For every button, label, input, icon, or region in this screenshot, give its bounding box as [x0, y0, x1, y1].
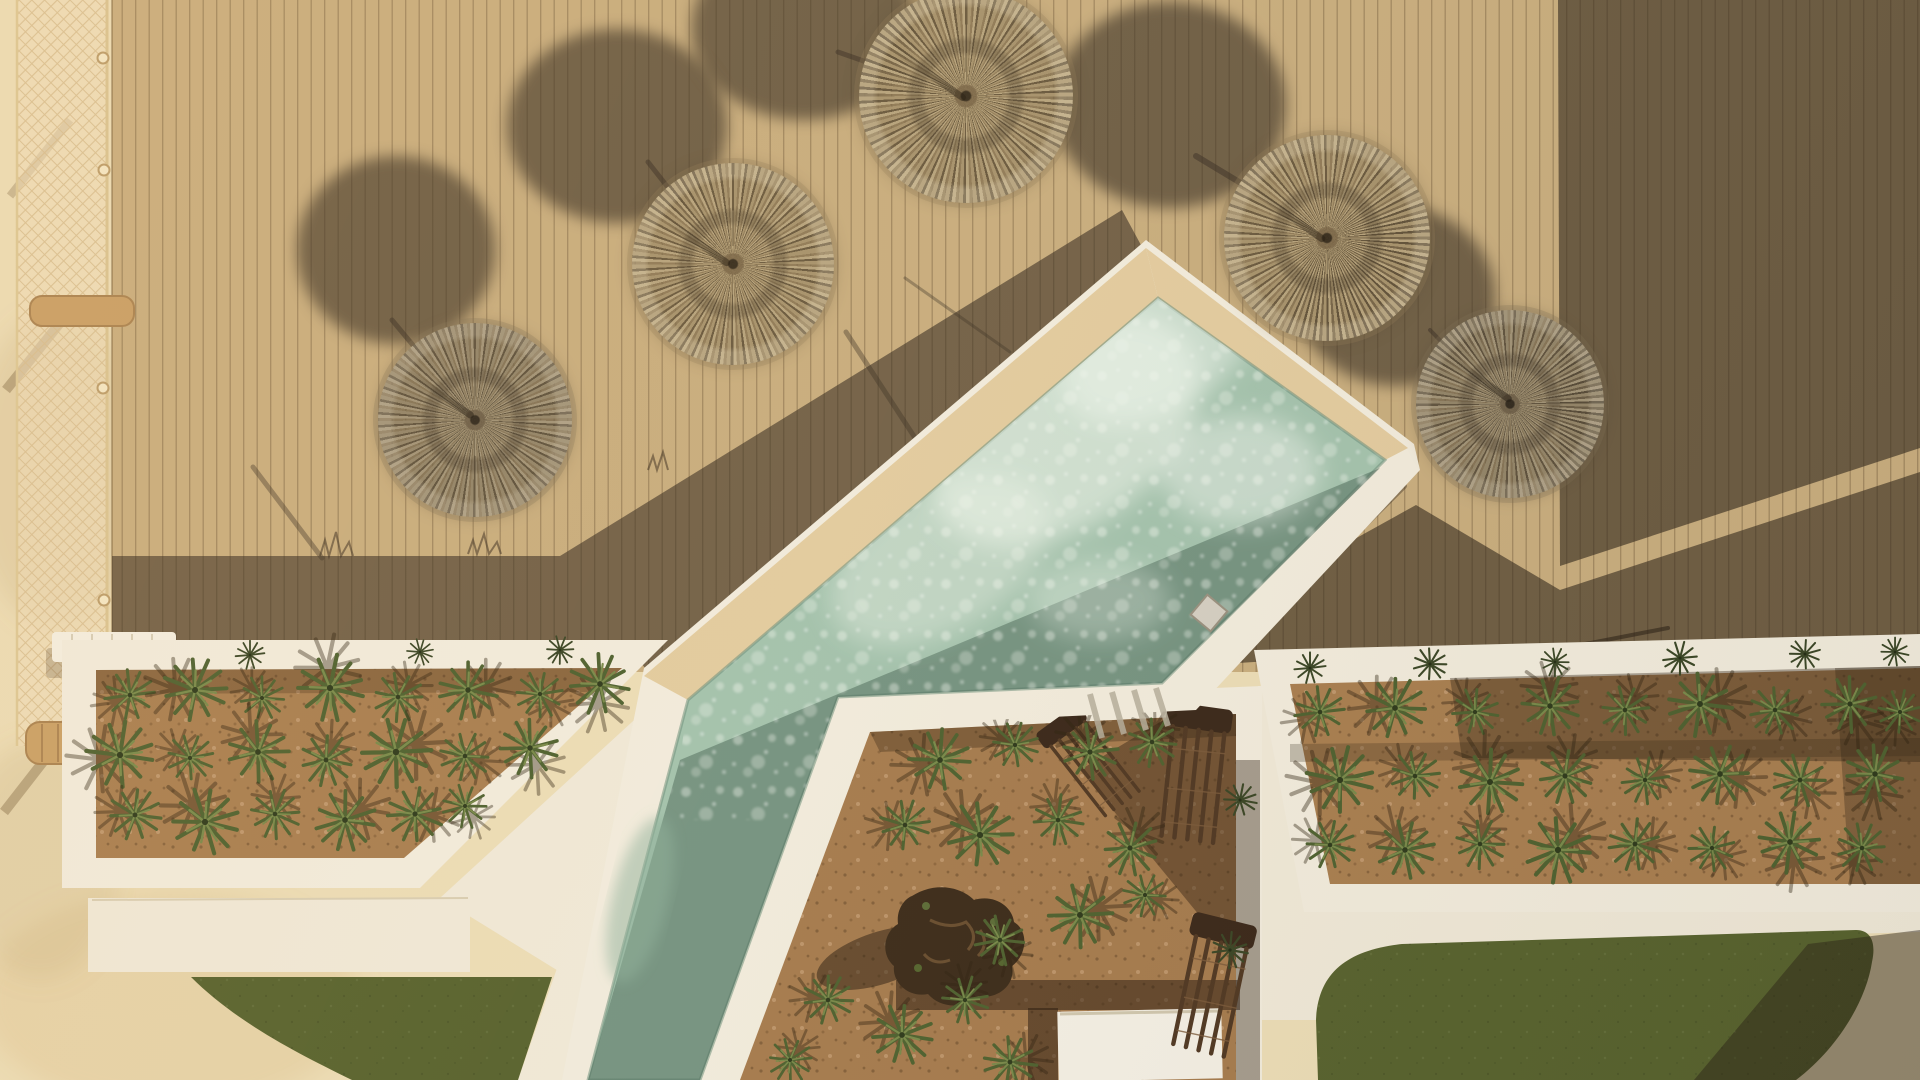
pool-terrace-aerial-photo: [0, 0, 1920, 1080]
umbrella-pole-shadow-icon: [661, 215, 731, 267]
umbrella-pole-shadow-icon: [1255, 191, 1327, 244]
umbrella-pole-shadow-icon: [893, 47, 967, 102]
lawn-right: [1316, 930, 1920, 1080]
umbrella-pole-shadow-icon: [1448, 355, 1514, 404]
umbrella-shadow: [297, 156, 495, 344]
umbrella-pole-shadow-icon: [408, 370, 476, 420]
